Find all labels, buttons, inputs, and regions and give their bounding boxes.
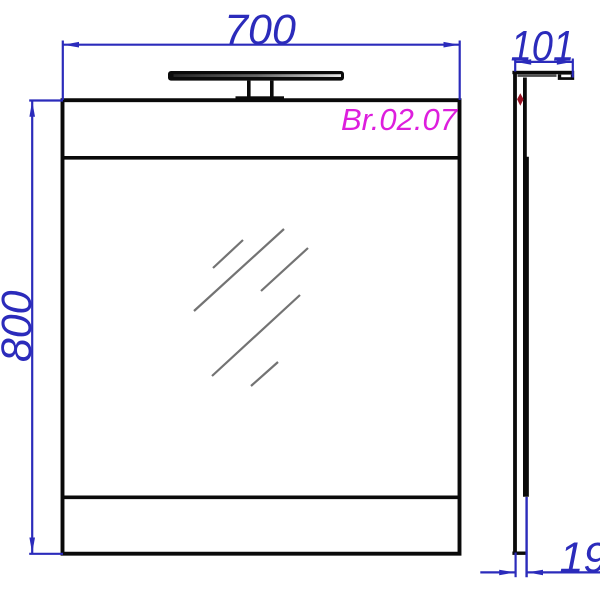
svg-text:101: 101 bbox=[511, 22, 575, 70]
svg-text:Br.02.07: Br.02.07 bbox=[341, 102, 459, 137]
svg-text:800: 800 bbox=[0, 290, 41, 362]
svg-text:700: 700 bbox=[224, 6, 296, 54]
svg-text:19: 19 bbox=[560, 534, 600, 582]
